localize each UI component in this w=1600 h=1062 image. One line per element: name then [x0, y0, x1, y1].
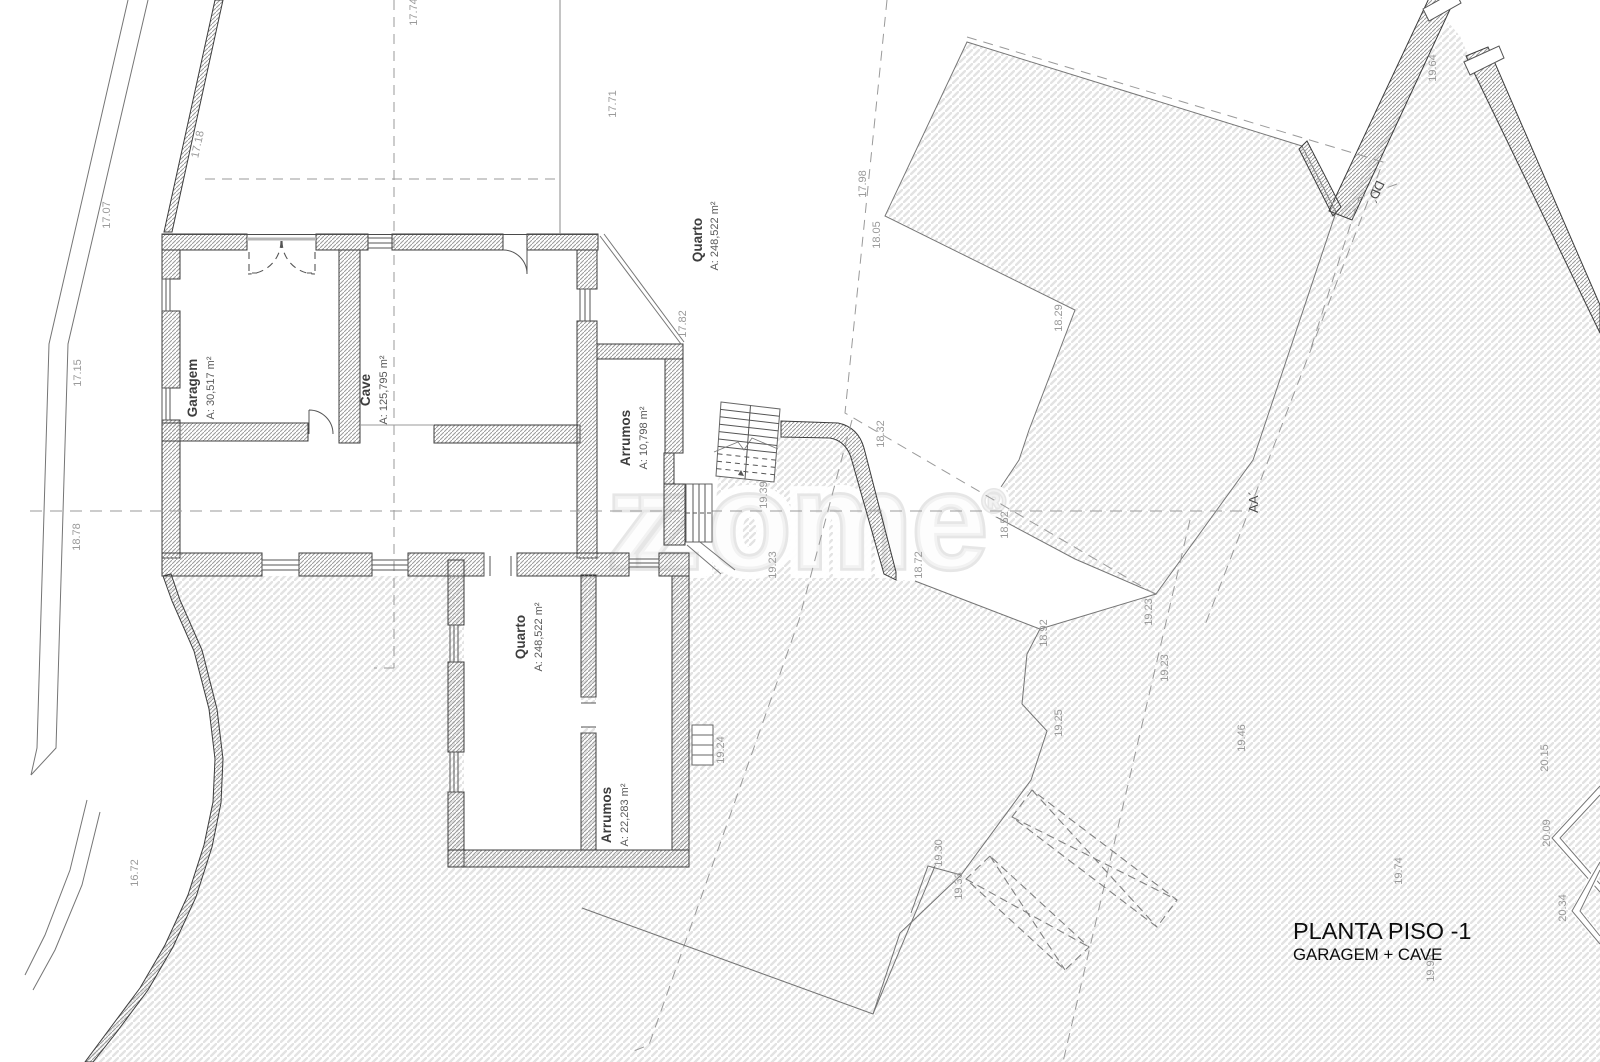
svg-text:18.29: 18.29	[1053, 304, 1065, 332]
svg-text:17.71: 17.71	[607, 90, 619, 118]
svg-text:PLANTA PISO -1: PLANTA PISO -1	[1293, 918, 1472, 944]
svg-text:19.74: 19.74	[1393, 857, 1405, 885]
svg-text:A: 30,517 m²: A: 30,517 m²	[205, 356, 217, 419]
svg-text:20.15: 20.15	[1539, 744, 1551, 772]
svg-text:19.25: 19.25	[1053, 709, 1065, 737]
svg-text:Quarto: Quarto	[690, 218, 705, 262]
svg-text:GARAGEM + CAVE: GARAGEM + CAVE	[1293, 945, 1442, 964]
svg-text:A: 22,283 m²: A: 22,283 m²	[619, 783, 631, 846]
svg-text:19.24: 19.24	[715, 736, 727, 764]
svg-text:Garagem: Garagem	[185, 359, 200, 418]
svg-text:Cave: Cave	[358, 373, 373, 406]
svg-text:19.39: 19.39	[758, 481, 770, 509]
svg-text:18.52: 18.52	[999, 511, 1011, 539]
svg-text:19.46: 19.46	[1236, 724, 1248, 752]
svg-text:A: 10,798 m²: A: 10,798 m²	[638, 406, 650, 469]
svg-text:19.30: 19.30	[933, 839, 945, 867]
svg-text:Quarto: Quarto	[513, 615, 528, 659]
svg-text:A: 248,522 m²: A: 248,522 m²	[533, 602, 545, 671]
svg-text:20.09: 20.09	[1541, 819, 1553, 847]
svg-text:17.74: 17.74	[408, 0, 420, 26]
svg-text:Arrumos: Arrumos	[618, 410, 633, 466]
svg-text:Arrumos: Arrumos	[599, 787, 614, 843]
svg-text:19.23: 19.23	[767, 551, 779, 579]
svg-text:18.32: 18.32	[875, 420, 887, 448]
svg-text:19.23: 19.23	[1159, 654, 1171, 682]
svg-text:AA´: AA´	[1246, 491, 1261, 513]
svg-text:18.92: 18.92	[1038, 619, 1050, 647]
svg-text:20.34: 20.34	[1557, 894, 1569, 922]
svg-text:19.64: 19.64	[1427, 54, 1439, 82]
svg-text:18.05: 18.05	[871, 221, 883, 249]
svg-text:17.07: 17.07	[101, 201, 113, 229]
svg-text:18.72: 18.72	[913, 551, 925, 579]
svg-text:17.15: 17.15	[72, 359, 84, 387]
svg-text:16.72: 16.72	[129, 859, 141, 887]
svg-text:18.78: 18.78	[71, 523, 83, 551]
svg-text:17.98: 17.98	[857, 170, 869, 198]
svg-text:A: 125,795 m²: A: 125,795 m²	[378, 355, 390, 424]
svg-text:19.23: 19.23	[1143, 598, 1155, 626]
svg-text:A: 248,522 m²: A: 248,522 m²	[709, 201, 721, 270]
svg-text:17.82: 17.82	[677, 310, 689, 338]
svg-text:19.33: 19.33	[953, 872, 965, 900]
